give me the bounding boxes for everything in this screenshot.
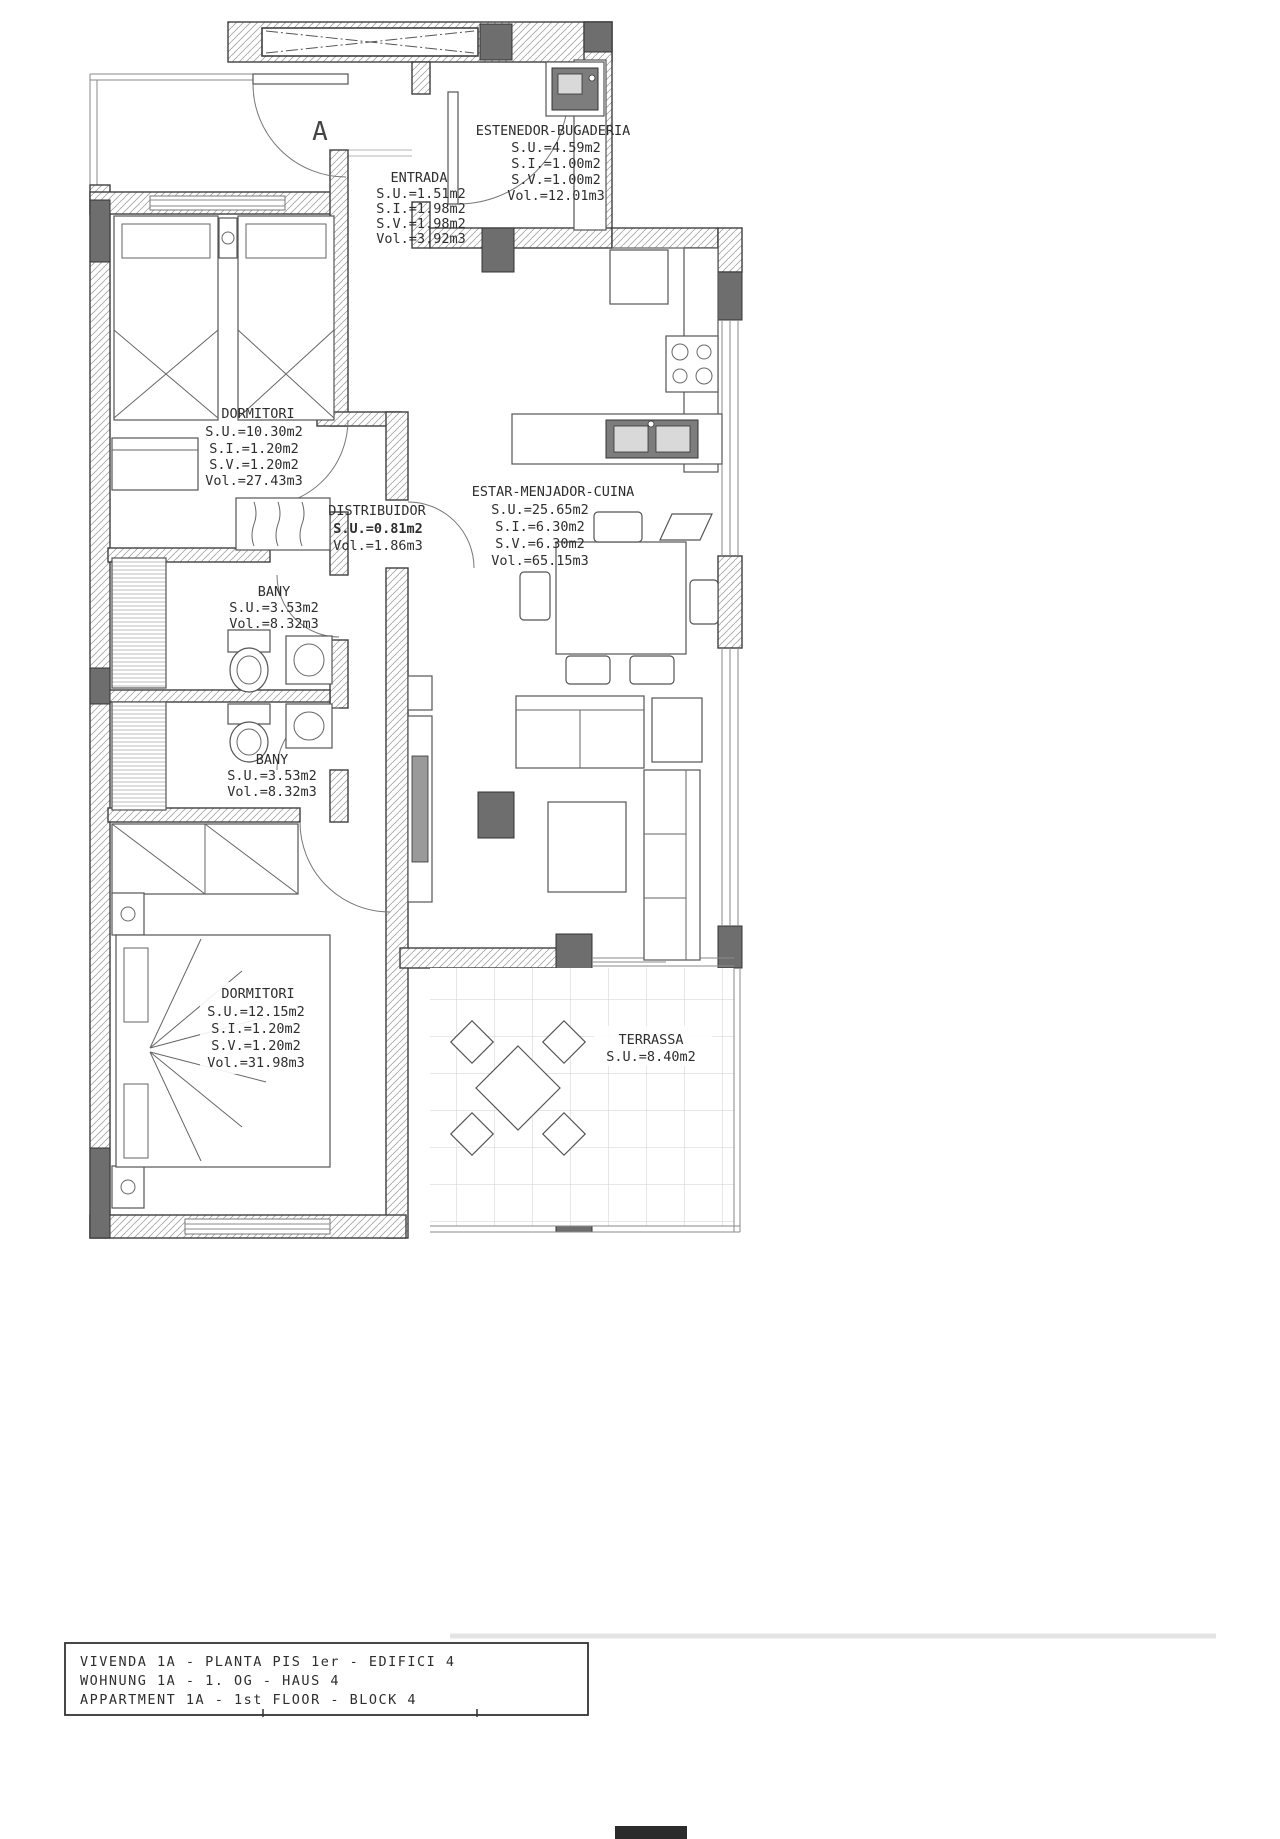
floor-plan-page: A ESTENEDOR-BUGADERIA S.U.=4.59m2 S.I.=1…	[0, 0, 1280, 1839]
sink	[286, 636, 332, 684]
bathtub	[112, 558, 166, 688]
label-dormitori-2: DORMITORI S.U.=12.15m2 S.I.=1.20m2 S.V.=…	[200, 982, 320, 1074]
armchair	[652, 698, 702, 762]
room-vol: Vol.=8.32m3	[229, 616, 318, 632]
room-name: ESTAR-MENJADOR-CUINA	[472, 484, 635, 500]
room-si: S.I.=1.00m2	[511, 156, 600, 172]
room-name: TERRASSA	[618, 1032, 683, 1048]
room-su: S.U.=8.40m2	[606, 1049, 695, 1065]
room-su: S.U.=4.59m2	[511, 140, 600, 156]
dining-chair	[690, 580, 718, 624]
porch-boundary-lines	[90, 74, 412, 192]
bedroom1-window	[150, 196, 285, 210]
desk	[112, 438, 198, 490]
nightstand	[112, 1166, 144, 1208]
single-bed	[114, 216, 218, 420]
label-distribuidor: DISTRIBUIDOR S.U.=0.81m2 Vol.=1.86m3	[328, 503, 426, 554]
room-name: DISTRIBUIDOR	[328, 503, 426, 519]
room-su: S.U.=1.51m2	[376, 186, 465, 202]
dining-chair	[660, 514, 712, 540]
label-dormitori-1: DORMITORI S.U.=10.30m2 S.I.=1.20m2 S.V.=…	[205, 406, 303, 489]
title-line-english: APPARTMENT 1A - 1st FLOOR - BLOCK 4	[80, 1692, 417, 1708]
room-name: DORMITORI	[221, 986, 294, 1002]
room-sv: S.V.=1.00m2	[511, 172, 600, 188]
room-vol: Vol.=27.43m3	[205, 473, 303, 489]
room-su: S.U.=3.53m2	[229, 600, 318, 616]
fridge	[610, 250, 668, 304]
room-si: S.I.=1.20m2	[211, 1021, 300, 1037]
beam-over-entry	[262, 28, 478, 56]
room-su: S.U.=25.65m2	[491, 502, 589, 518]
floor-plan-drawing: A ESTENEDOR-BUGADERIA S.U.=4.59m2 S.I.=1…	[0, 0, 1280, 1839]
label-bany-1: BANY S.U.=3.53m2 Vol.=8.32m3	[229, 584, 318, 632]
room-su: S.U.=12.15m2	[207, 1004, 305, 1020]
cooktop	[666, 336, 718, 392]
toilet	[228, 630, 270, 692]
nightstand	[112, 893, 144, 935]
wardrobe	[236, 498, 330, 550]
single-bed	[238, 216, 334, 420]
kitchen-island	[512, 414, 722, 464]
room-su: S.U.=3.53m2	[227, 768, 316, 784]
room-vol: Vol.=31.98m3	[207, 1055, 305, 1071]
room-sv: S.V.=1.20m2	[209, 457, 298, 473]
terrace	[430, 968, 740, 1232]
room-sv: S.V.=1.20m2	[211, 1038, 300, 1054]
bedroom1-furniture	[112, 216, 334, 550]
room-name: BANY	[256, 752, 289, 768]
room-si: S.I.=6.30m2	[495, 519, 584, 535]
bedroom2-window	[185, 1219, 330, 1234]
room-name: ENTRADA	[391, 170, 448, 186]
title-line-german: WOHNUNG 1A - 1. OG - HAUS 4	[80, 1673, 340, 1689]
room-vol: Vol.=1.86m3	[333, 538, 422, 554]
section-marker-a: A	[312, 117, 328, 147]
coffee-table	[548, 802, 626, 892]
room-name: BANY	[258, 584, 291, 600]
room-name: ESTENEDOR-BUGADERIA	[476, 123, 630, 139]
room-sv: S.V.=6.30m2	[495, 536, 584, 552]
room-sv: S.V.=1.98m2	[376, 216, 465, 232]
label-terrassa: TERRASSA S.U.=8.40m2	[594, 1026, 712, 1066]
room-vol: Vol.=8.32m3	[227, 784, 316, 800]
wardrobe	[112, 824, 298, 894]
dining-chair	[520, 572, 550, 620]
page-corner-mark	[615, 1826, 687, 1839]
tv-cabinet	[408, 676, 432, 902]
room-vol: Vol.=65.15m3	[491, 553, 589, 569]
room-name: DORMITORI	[221, 406, 294, 422]
bedroom2-door	[300, 822, 390, 912]
dining-chair	[594, 512, 642, 542]
kitchen-fixtures	[512, 248, 722, 472]
nightstand	[219, 218, 237, 258]
room-vol: Vol.=12.01m3	[507, 188, 605, 204]
title-block: VIVENDA 1A - PLANTA PIS 1er - EDIFICI 4 …	[65, 1636, 1216, 1717]
sink	[286, 704, 332, 748]
bathtub	[112, 702, 166, 810]
room-su: S.U.=10.30m2	[205, 424, 303, 440]
title-line-catalan: VIVENDA 1A - PLANTA PIS 1er - EDIFICI 4	[80, 1654, 455, 1670]
room-su: S.U.=0.81m2	[333, 521, 422, 537]
room-si: S.I.=1.98m2	[376, 201, 465, 217]
living-furniture	[408, 676, 702, 960]
room-vol: Vol.=3.92m3	[376, 231, 465, 247]
dining-chair	[630, 656, 674, 684]
room-si: S.I.=1.20m2	[209, 441, 298, 457]
dining-chair	[566, 656, 610, 684]
sofa	[644, 770, 700, 960]
loveseat	[516, 696, 644, 768]
